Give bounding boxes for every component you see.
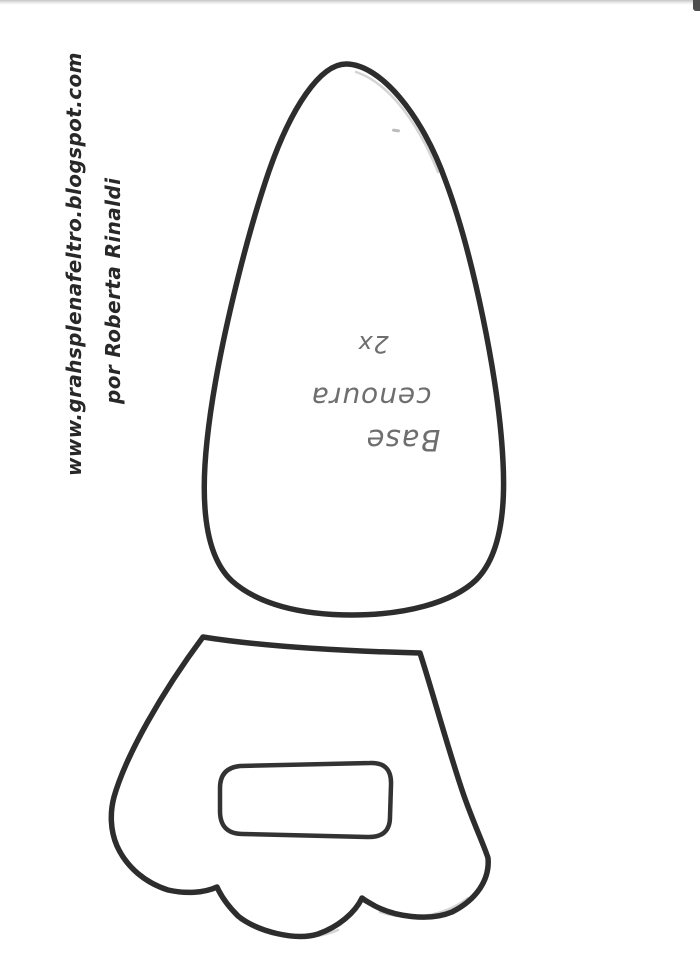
scanned-pattern-page: www.grahsplenafeltro.blogspot.com por Ro… (0, 0, 700, 963)
scalloped-piece-outline (111, 637, 488, 936)
piece-subject-label: cenoura (306, 381, 436, 414)
piece-title-label: Base (360, 423, 446, 457)
piece-quantity-label: 2x (338, 330, 408, 358)
watermark-author-credit: por Roberta Rinaldi (101, 138, 125, 404)
scan-echo-egg-peak (356, 72, 438, 172)
slot-cutout-outline (220, 763, 391, 837)
watermark-blog-url: www.grahsplenafeltro.blogspot.com (62, 76, 86, 476)
